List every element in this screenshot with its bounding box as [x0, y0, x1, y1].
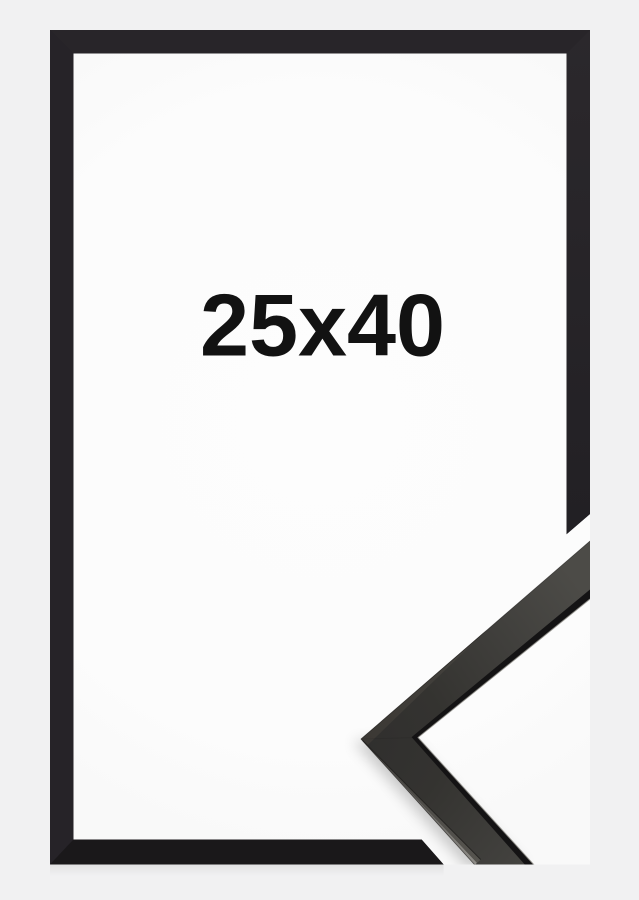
svg-text:25x40: 25x40: [200, 276, 445, 375]
